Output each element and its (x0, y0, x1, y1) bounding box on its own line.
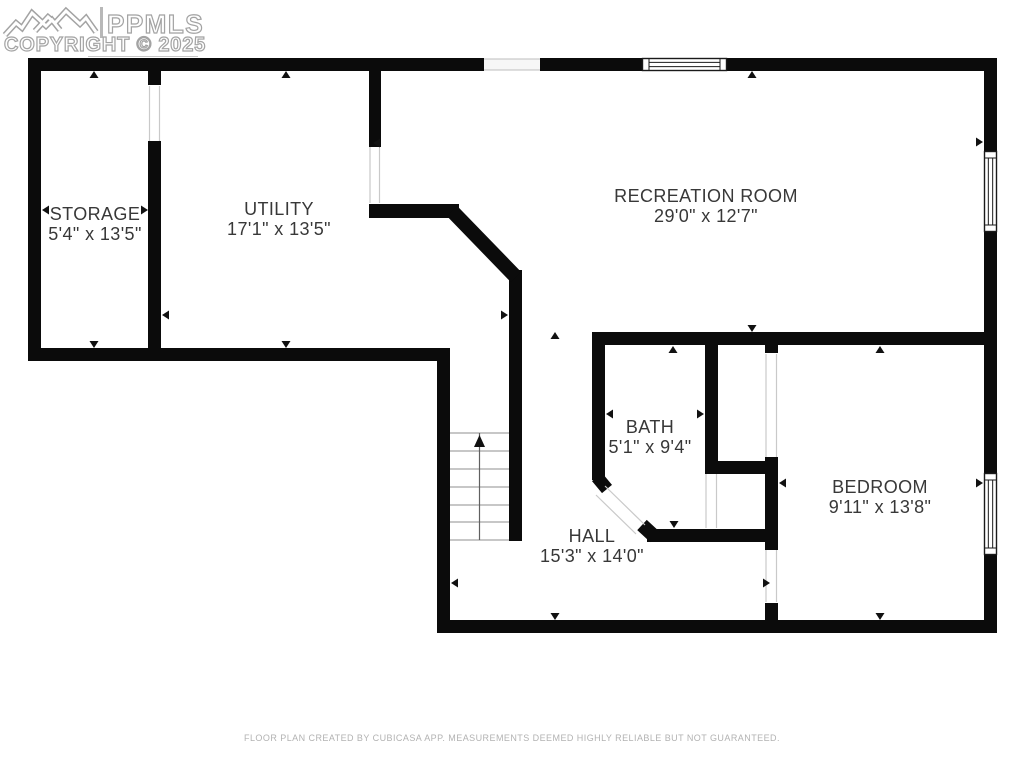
wall (369, 204, 459, 218)
dimension-marker-icon (90, 341, 99, 348)
dimension-marker-icon (162, 311, 169, 320)
room-name: UTILITY (227, 199, 331, 219)
room-label-recreation-room: RECREATION ROOM 29'0" x 12'7" (614, 186, 798, 226)
wall (437, 620, 997, 633)
wall (28, 58, 41, 360)
wall (437, 348, 450, 633)
dimension-marker-icon (876, 346, 885, 353)
room-label-storage: STORAGE 5'4" x 13'5" (48, 204, 142, 244)
room-name: RECREATION ROOM (614, 186, 798, 206)
room-dimensions: 9'11" x 13'8" (829, 497, 932, 517)
dimension-marker-icon (748, 325, 757, 332)
dimension-marker-icon (976, 479, 983, 488)
room-name: BATH (608, 417, 691, 437)
dimension-marker-icon (670, 521, 679, 528)
wall (148, 141, 161, 360)
wall (148, 58, 161, 85)
floor-plan-drawing (0, 0, 1024, 767)
footer-disclaimer: FLOOR PLAN CREATED BY CUBICASA APP. MEAS… (0, 733, 1024, 743)
watermark: PPMLS COPYRIGHT © 2025 (0, 0, 230, 62)
wall (647, 529, 778, 542)
door-opening-line (605, 486, 645, 525)
room-name: HALL (540, 526, 644, 546)
dimension-marker-icon (697, 410, 704, 419)
wall (540, 58, 642, 71)
dimension-marker-icon (876, 613, 885, 620)
room-name: BEDROOM (829, 477, 932, 497)
room-label-bath: BATH 5'1" x 9'4" (608, 417, 691, 457)
window (985, 152, 997, 232)
room-dimensions: 5'4" x 13'5" (48, 224, 142, 244)
watermark-underline (88, 56, 198, 57)
wall (765, 603, 778, 633)
dimension-marker-icon (748, 71, 757, 78)
wall-opening-fill (484, 59, 540, 70)
wall (984, 58, 997, 151)
dimension-marker-icon (501, 311, 508, 320)
stair-up-arrow-icon (474, 435, 485, 447)
window (643, 59, 727, 71)
room-name: STORAGE (48, 204, 142, 224)
dimension-marker-icon (551, 613, 560, 620)
dimension-marker-icon (669, 346, 678, 353)
room-dimensions: 17'1" x 13'5" (227, 219, 331, 239)
dimension-marker-icon (282, 71, 291, 78)
window (985, 474, 997, 555)
dimension-marker-icon (551, 332, 560, 339)
dimension-marker-icon (141, 206, 148, 215)
wall (509, 270, 522, 541)
room-label-bedroom: BEDROOM 9'11" x 13'8" (829, 477, 932, 517)
room-label-hall: HALL 15'3" x 14'0" (540, 526, 644, 566)
dimension-marker-icon (282, 341, 291, 348)
floor-plan-canvas: STORAGE 5'4" x 13'5" UTILITY 17'1" x 13'… (0, 0, 1024, 767)
dimension-marker-icon (90, 71, 99, 78)
wall (592, 332, 997, 345)
wall (727, 58, 997, 71)
wall (369, 58, 381, 147)
dimension-marker-icon (976, 138, 983, 147)
wall (984, 555, 997, 633)
wall (592, 332, 605, 480)
wall (984, 232, 997, 473)
room-dimensions: 29'0" x 12'7" (614, 206, 798, 226)
wall (705, 332, 718, 473)
room-dimensions: 5'1" x 9'4" (608, 437, 691, 457)
diagonal-wall (452, 211, 516, 277)
wall (765, 332, 778, 353)
room-label-utility: UTILITY 17'1" x 13'5" (227, 199, 331, 239)
dimension-marker-icon (451, 579, 458, 588)
wall (28, 348, 450, 361)
room-dimensions: 15'3" x 14'0" (540, 546, 644, 566)
watermark-copyright-text: COPYRIGHT © 2025 (4, 34, 206, 57)
dimension-marker-icon (779, 479, 786, 488)
